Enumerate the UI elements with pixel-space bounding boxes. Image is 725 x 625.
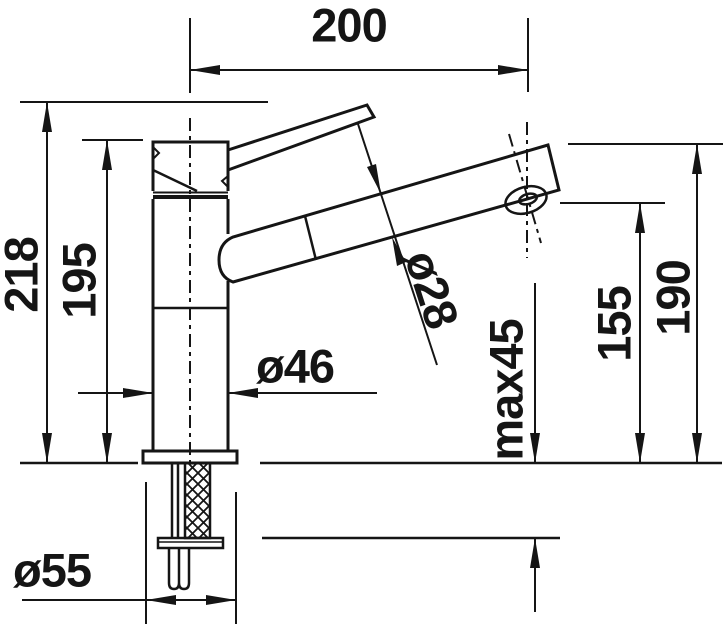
dim-label-spout-end-height: 190 [650, 260, 697, 335]
dim-label-max-mounting-thickness: max45 [483, 319, 530, 460]
arrow-left [146, 595, 176, 605]
arrow-down [692, 433, 702, 463]
lever-handle [228, 105, 374, 170]
mounting-parts [158, 463, 223, 589]
arrow-up [635, 203, 645, 233]
arrow-down [42, 433, 52, 463]
arrow-up [530, 538, 540, 568]
threaded-shank [185, 463, 210, 538]
arrow-right [123, 388, 153, 398]
arrow-down [635, 433, 645, 463]
mounting-stud [172, 463, 178, 538]
arrow-up [42, 102, 52, 132]
dim-label-body-top-height: 195 [56, 243, 103, 318]
clamp-washer [158, 538, 223, 548]
arrow-up [692, 144, 702, 174]
supply-hoses [169, 548, 189, 589]
spray-head-seam [305, 216, 316, 260]
arrow-left [190, 65, 220, 75]
arrow-upper [367, 164, 381, 194]
dim-label-spout-reach: 200 [311, 2, 386, 49]
arrow-down [102, 433, 112, 463]
faucet-dimension-drawing: 200 218 195 ø28 ø46 max45 155 190 ø55 [0, 0, 725, 625]
countertop-lines [20, 463, 722, 538]
dim-label-outlet-height: 155 [591, 286, 638, 361]
arrow-left [228, 388, 258, 398]
arrow-right [498, 65, 528, 75]
spout-tube [219, 145, 559, 282]
dim-label-base-diameter: ø55 [13, 547, 91, 594]
arrow-up [102, 140, 112, 170]
dim-label-body-diameter: ø46 [256, 343, 334, 390]
arrow-right [206, 595, 236, 605]
dim-label-overall-height: 218 [0, 237, 45, 312]
